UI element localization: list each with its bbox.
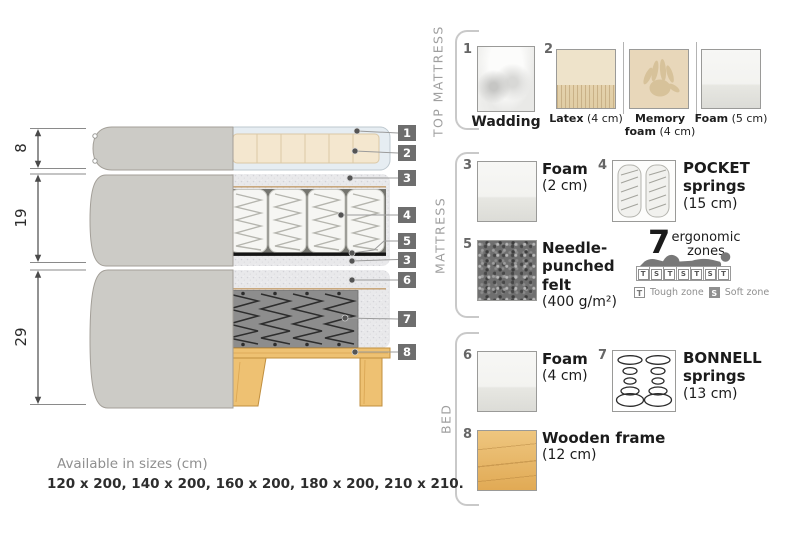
legend-num-5: 5 bbox=[463, 237, 472, 252]
bed-cutaway bbox=[222, 270, 390, 406]
latex-caption: Latex (4 cm) bbox=[547, 113, 625, 126]
bonnell-springs-photo bbox=[612, 350, 676, 412]
bed-cover bbox=[90, 270, 233, 408]
dimension-labels: 8 19 29 bbox=[12, 143, 30, 346]
callout-2: 2 bbox=[398, 145, 416, 161]
pocket-size: (15 cm) bbox=[683, 196, 750, 213]
cover-button-top bbox=[93, 134, 97, 138]
wadding-caption: Wadding bbox=[462, 114, 550, 131]
zone-letter-4: S bbox=[678, 269, 689, 281]
zone-letter-2: S bbox=[651, 269, 662, 281]
mattress-cutaway bbox=[225, 174, 390, 266]
zone-cell-3: T bbox=[663, 266, 677, 281]
foam2-photo bbox=[477, 161, 537, 222]
foam4-size: (4 cm) bbox=[542, 368, 588, 385]
bonnell-name-line1: BONNELL bbox=[683, 349, 762, 367]
felt-size: (400 g/m²) bbox=[542, 294, 617, 311]
bonnell-text: BONNELL springs (13 cm) bbox=[683, 349, 762, 403]
bonnell-size: (13 cm) bbox=[683, 386, 762, 403]
soft-zone-label: Soft zone bbox=[725, 287, 769, 298]
svg-text:1: 1 bbox=[403, 126, 411, 140]
legend-num-6: 6 bbox=[463, 348, 472, 363]
section-bracket-mattress bbox=[455, 152, 479, 318]
felt-name-line1: Needle- bbox=[542, 239, 617, 257]
section-label-mattress: MATTRESS bbox=[430, 152, 450, 318]
bed-cross-section-diagram: 8 19 29 1 2 3 4 5 3 bbox=[0, 0, 430, 533]
frame-size: (12 cm) bbox=[542, 447, 665, 464]
soft-zone-key-icon: S bbox=[709, 287, 720, 298]
pocket-springs-text: POCKET springs (15 cm) bbox=[683, 159, 750, 213]
felt-layer bbox=[230, 253, 386, 256]
svg-text:6: 6 bbox=[403, 273, 411, 287]
zone-cell-6: S bbox=[703, 266, 717, 281]
callout-7: 7 bbox=[398, 311, 416, 327]
svg-text:7: 7 bbox=[403, 312, 411, 326]
ergonomic-label-line1: ergonomic bbox=[670, 231, 742, 245]
svg-text:4: 4 bbox=[403, 208, 411, 222]
svg-text:5: 5 bbox=[403, 234, 411, 248]
foam2-text: Foam (2 cm) bbox=[542, 160, 588, 195]
zone-letter-3: T bbox=[664, 269, 675, 281]
zone-letter-7: T bbox=[718, 269, 729, 281]
top-mattress-cover bbox=[93, 127, 233, 170]
pocket-name-line1: POCKET bbox=[683, 159, 750, 177]
bonnell-springs-icon bbox=[613, 351, 675, 411]
legend-num-7: 7 bbox=[598, 348, 607, 363]
divider-latex-memory bbox=[623, 42, 624, 114]
zone-cell-4: S bbox=[676, 266, 690, 281]
memory-foam-caption: Memoryfoam (4 cm) bbox=[620, 113, 700, 139]
bed-construction-infographic: 8 19 29 1 2 3 4 5 3 bbox=[0, 0, 800, 533]
tough-zone-key-icon: T bbox=[634, 287, 645, 298]
wooden-frame-text: Wooden frame (12 cm) bbox=[542, 429, 665, 464]
divider-memory-foam bbox=[696, 42, 697, 114]
dim-mattress: 19 bbox=[12, 208, 30, 227]
felt-photo bbox=[477, 240, 537, 301]
sizes-heading: Available in sizes (cm) bbox=[57, 456, 208, 472]
memory-size: (4 cm) bbox=[659, 125, 695, 138]
legend-num-4: 4 bbox=[598, 158, 607, 173]
cover-button-bottom bbox=[93, 159, 97, 163]
memory-name-line1: Memory bbox=[635, 112, 685, 125]
foam4-photo bbox=[477, 351, 537, 412]
foam5-photo bbox=[701, 49, 761, 109]
zone-cell-5: T bbox=[690, 266, 704, 281]
legend-num-2: 2 bbox=[544, 42, 553, 57]
foam4-name: Foam bbox=[542, 350, 588, 368]
pocket-name-line2: springs bbox=[683, 177, 750, 195]
felt-text: Needle- punched felt (400 g/m²) bbox=[542, 239, 617, 311]
lying-person-icon bbox=[636, 247, 737, 267]
pocket-springs-icon bbox=[613, 161, 675, 221]
legend-num-3: 3 bbox=[463, 158, 472, 173]
svg-text:2: 2 bbox=[403, 146, 411, 160]
frame-name: Wooden frame bbox=[542, 429, 665, 447]
foam5-name: Foam bbox=[695, 112, 729, 125]
latex-photo bbox=[556, 49, 616, 109]
callout-4: 4 bbox=[398, 207, 416, 223]
foam2-size: (2 cm) bbox=[542, 178, 588, 195]
callout-8: 8 bbox=[398, 344, 416, 360]
pocket-springs-photo bbox=[612, 160, 676, 222]
foam5-size: (5 cm) bbox=[732, 112, 768, 125]
latex-size: (4 cm) bbox=[587, 112, 623, 125]
zone-key: T Tough zone S Soft zone bbox=[634, 287, 769, 298]
tough-zone-label: Tough zone bbox=[650, 287, 704, 298]
foam4-text: Foam (4 cm) bbox=[542, 350, 588, 385]
hand-imprint-icon bbox=[630, 50, 688, 108]
zone-letter-6: S bbox=[705, 269, 716, 281]
callout-3: 3 bbox=[398, 170, 416, 186]
dim-top-mattress: 8 bbox=[12, 143, 30, 153]
zone-cell-7: T bbox=[716, 266, 730, 281]
zone-letter-1: T bbox=[638, 269, 649, 281]
dim-bed: 29 bbox=[12, 327, 30, 346]
memory-foam-photo bbox=[629, 49, 689, 109]
wooden-frame-illustration bbox=[222, 348, 390, 406]
zone-cell-2: S bbox=[649, 266, 663, 281]
memory-name-line2: foam bbox=[625, 125, 656, 138]
ergonomic-zone-strip: T S T S T S T bbox=[636, 266, 731, 281]
svg-text:3: 3 bbox=[403, 253, 411, 267]
zone-cell-1: T bbox=[636, 266, 650, 281]
foam5-caption: Foam (5 cm) bbox=[692, 113, 770, 126]
wooden-frame-photo bbox=[477, 430, 537, 491]
callout-3b: 3 bbox=[398, 252, 416, 268]
top-mattress-cutaway bbox=[225, 127, 390, 170]
callout-1: 1 bbox=[398, 125, 416, 141]
callout-6: 6 bbox=[398, 272, 416, 288]
foam2-name: Foam bbox=[542, 160, 588, 178]
callout-5: 5 bbox=[398, 233, 416, 249]
zone-letter-5: T bbox=[691, 269, 702, 281]
section-label-top-mattress: TOP MATTRESS bbox=[428, 30, 448, 132]
latex-name: Latex bbox=[549, 112, 583, 125]
sizes-values: 120 x 200, 140 x 200, 160 x 200, 180 x 2… bbox=[47, 476, 464, 492]
felt-name-line2: punched bbox=[542, 257, 617, 275]
svg-text:3: 3 bbox=[403, 171, 411, 185]
svg-text:8: 8 bbox=[403, 345, 411, 359]
callout-boxes: 1 2 3 4 5 3 6 7 8 bbox=[398, 125, 416, 360]
wadding-photo bbox=[477, 46, 535, 112]
bonnell-name-line2: springs bbox=[683, 367, 762, 385]
legend-num-8: 8 bbox=[463, 427, 472, 442]
legend-num-1: 1 bbox=[463, 42, 472, 57]
mattress-cover bbox=[90, 175, 233, 266]
felt-name-line3: felt bbox=[542, 276, 617, 294]
